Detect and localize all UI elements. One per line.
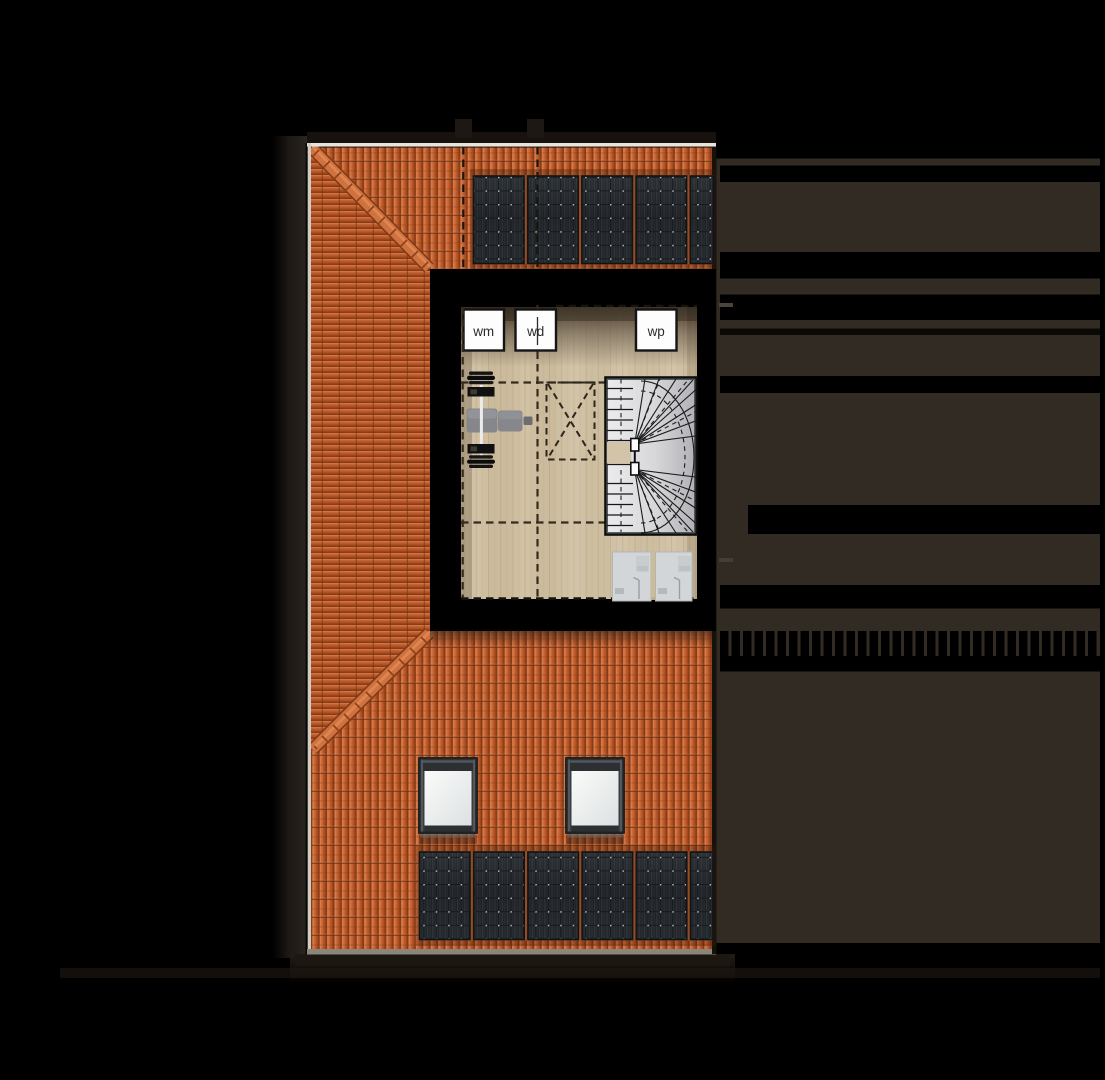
svg-text:wm: wm (472, 324, 494, 339)
svg-text:wp: wp (647, 324, 665, 339)
svg-text:wd: wd (526, 324, 544, 339)
